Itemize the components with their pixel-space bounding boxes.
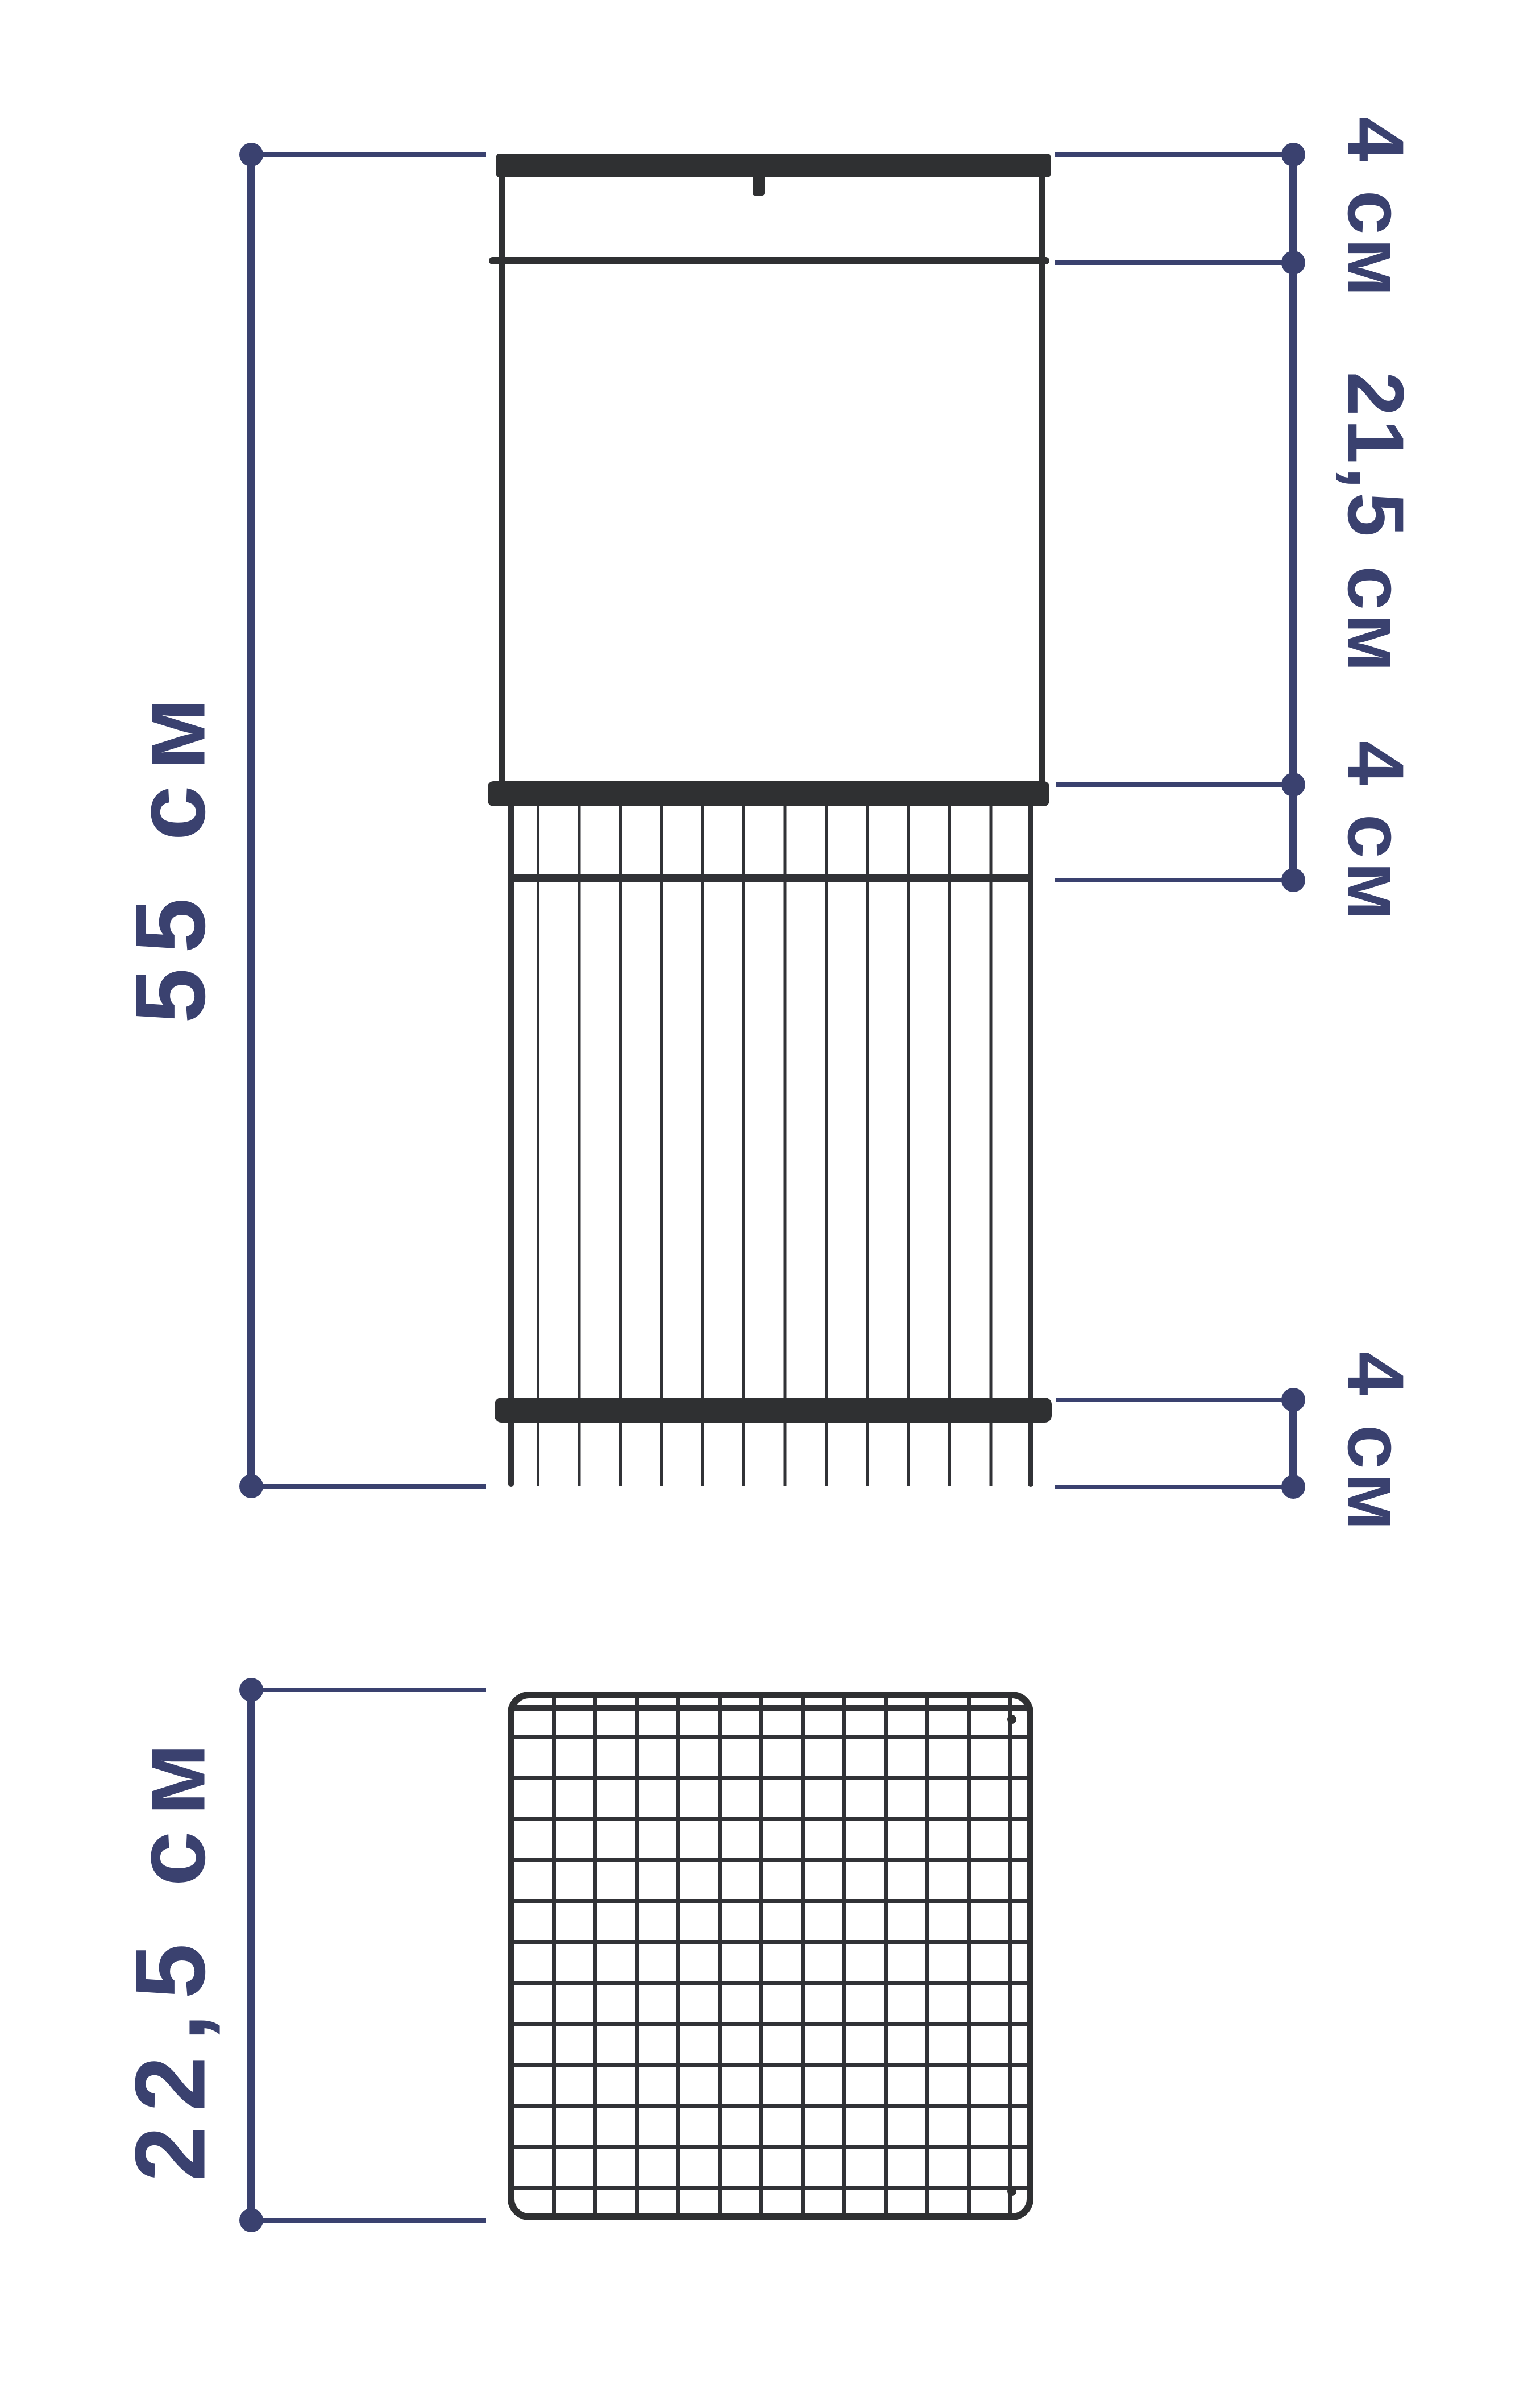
dimension-tick	[251, 1688, 486, 1692]
dimension-label-depth: 22,5 см	[114, 1728, 228, 2182]
basket-right-frame-wire	[1028, 806, 1033, 1487]
dimension-tick	[1055, 152, 1290, 157]
dimension-tick	[1056, 782, 1290, 787]
dimension-tick	[1055, 878, 1290, 882]
basket-wires-lower	[537, 1423, 995, 1486]
basket-left-frame-wire	[508, 806, 514, 1487]
dimension-tick	[251, 2218, 486, 2223]
wall-hook-tab	[753, 177, 765, 196]
dimension-line	[1289, 1400, 1297, 1487]
dimension-tick	[251, 1484, 486, 1489]
mount-rail	[496, 154, 1051, 177]
dimension-label-total-height: 55 см	[114, 682, 228, 1023]
basket-grid-plan	[508, 1692, 1033, 2220]
corner-wire-dot	[1007, 1715, 1016, 1724]
panel-left-edge	[499, 177, 505, 783]
panel-right-edge	[1039, 177, 1045, 783]
dimension-tick	[1055, 1485, 1290, 1489]
dimension-label-top-section: 4 см	[1330, 117, 1422, 300]
basket-bottom-rail	[495, 1398, 1052, 1423]
dimension-label-panel-height: 21,5 см	[1330, 372, 1422, 676]
dimension-line	[247, 155, 255, 1486]
dimension-label-bottom-section: 4 см	[1330, 1351, 1422, 1535]
basket-wires-upper	[537, 806, 995, 1400]
dimension-tick	[1056, 1398, 1290, 1402]
panel-fold-line	[489, 257, 1049, 264]
dimension-tick	[1055, 260, 1290, 265]
dimension-tick	[251, 152, 486, 157]
dimension-line	[247, 1690, 255, 2220]
basket-rim-back-edge	[514, 1705, 1027, 1711]
basket-front-top-rail	[488, 781, 1049, 806]
dimension-diagram: 55 см 4 см 21,5 см 4 см 4 см 22,5 см	[0, 0, 1540, 2388]
corner-wire-dot	[1007, 2187, 1016, 2196]
dimension-label-rim-section: 4 см	[1330, 741, 1422, 924]
